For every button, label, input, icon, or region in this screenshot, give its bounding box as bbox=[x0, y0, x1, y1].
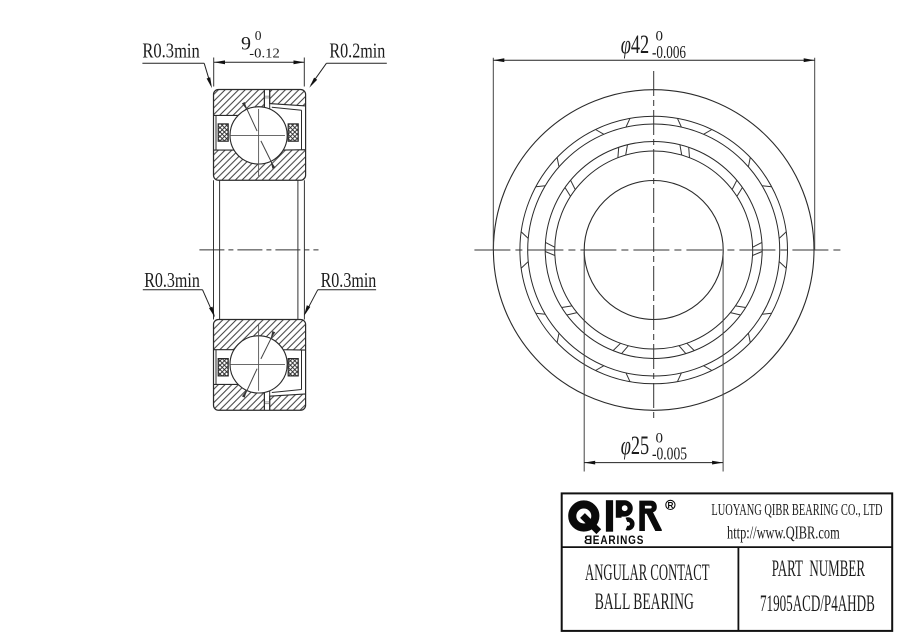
svg-text:71905ACD/P4AHDB: 71905ACD/P4AHDB bbox=[760, 591, 875, 617]
svg-text:EARINGS: EARINGS bbox=[593, 535, 645, 547]
svg-text:B: B bbox=[584, 535, 592, 547]
svg-text:-0.006: -0.006 bbox=[652, 42, 686, 62]
svg-text:0: 0 bbox=[255, 28, 262, 43]
svg-text:-0.005: -0.005 bbox=[652, 444, 687, 464]
svg-text:R0.3min: R0.3min bbox=[144, 268, 200, 292]
svg-text:-0.12: -0.12 bbox=[249, 47, 279, 62]
svg-text:http://www.QIBR.com: http://www.QIBR.com bbox=[727, 523, 840, 543]
svg-text:PART NUMBER: PART NUMBER bbox=[772, 556, 865, 582]
svg-text:R0.3min: R0.3min bbox=[142, 39, 200, 63]
svg-text:R0.2min: R0.2min bbox=[329, 39, 385, 63]
svg-text:BALL BEARING: BALL BEARING bbox=[595, 589, 694, 615]
svg-text:LUOYANG QIBR BEARING CO., LTD: LUOYANG QIBR BEARING CO., LTD bbox=[711, 500, 882, 519]
svg-text:φ42: φ42 bbox=[621, 30, 650, 59]
svg-text:φ25: φ25 bbox=[621, 431, 650, 460]
svg-text:R0.3min: R0.3min bbox=[321, 268, 377, 292]
svg-text:R: R bbox=[667, 501, 673, 510]
svg-text:ANGULAR CONTACT: ANGULAR CONTACT bbox=[585, 560, 710, 586]
